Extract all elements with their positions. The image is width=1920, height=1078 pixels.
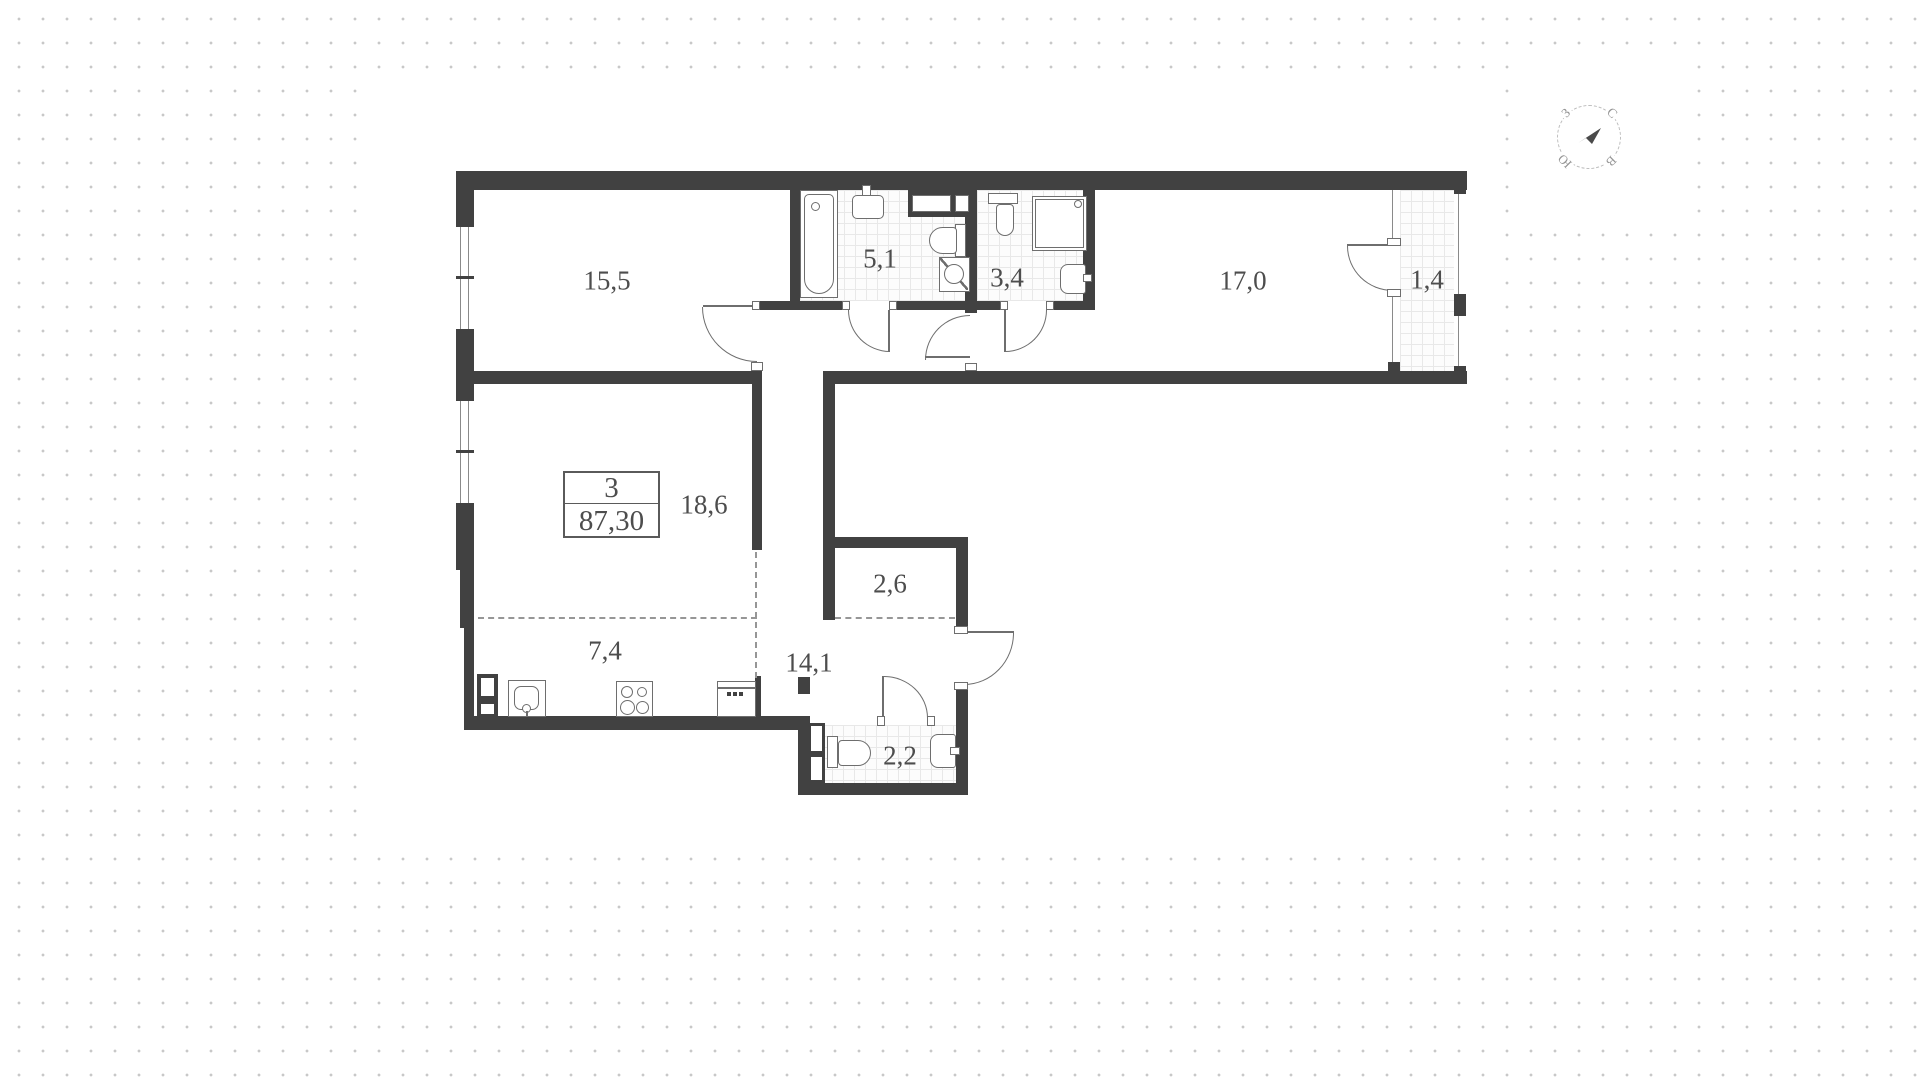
vent-shaft-opening [912,195,951,212]
shower-drain [1074,200,1082,208]
room-area-label: 1,4 [1410,265,1444,296]
toilet-bowl [838,740,871,766]
vent-shaft-opening [955,195,969,212]
door-arc [848,310,890,352]
wall-column [798,677,810,694]
balcony-window [1388,190,1400,244]
glazing-mullion [1454,190,1466,194]
room-area-label: 2,2 [883,741,917,772]
floor-plan-canvas: 15,5 5,1 3,4 17,0 1,4 18,6 2,6 7,4 14,1 … [0,0,1920,1078]
door-jamb [954,626,968,634]
wall-segment [823,371,1467,384]
glazing-mullion [1454,294,1466,316]
zone-boundary-dashed [835,617,955,619]
toilet-tank [988,193,1018,204]
window-sill [456,224,474,227]
wall-segment [757,301,848,310]
window-sill [456,329,474,332]
door-arc [884,676,928,718]
toilet-bowl [929,227,957,254]
toilet-tank [827,736,838,768]
door-leaf [703,305,757,307]
door-leaf [925,356,970,358]
wall-segment [460,570,474,628]
window-sill [456,450,474,453]
apartment-number: 3 [565,473,658,504]
appliance-dot [739,692,743,696]
door-leaf [888,310,890,352]
door-leaf [1004,310,1006,352]
window-sill [456,398,474,401]
door-arc [702,307,757,362]
floor-plan: 15,5 5,1 3,4 17,0 1,4 18,6 2,6 7,4 14,1 … [0,0,1920,1078]
vent-duct [808,723,825,754]
door-jamb [954,682,968,690]
faucet [862,185,871,196]
stove-burner [620,700,635,715]
room-area-label: 2,6 [873,569,907,600]
door-jamb [1046,301,1054,310]
room-area-label: 15,5 [583,266,630,297]
wall-segment [464,716,810,730]
vent-duct [808,754,825,783]
door-jamb [927,716,935,726]
washing-machine [939,257,970,292]
apartment-info-box: 3 87,30 [563,471,660,538]
wall-segment [956,689,968,795]
window-sill [456,276,474,279]
door-jamb [752,301,760,310]
bathtub-drain [811,202,820,211]
kitchen-faucet-stem [526,711,528,717]
door-jamb [889,301,897,310]
sink [852,195,884,219]
stove-burner [636,701,649,714]
room-area-label: 5,1 [863,244,897,275]
compass-arrow-icon [1578,127,1602,147]
wall-segment [456,506,474,570]
door-leaf [882,676,884,718]
wall-segment [835,537,956,548]
toilet-bowl [996,204,1014,236]
appliance-dot [727,692,731,696]
balcony-glazing [1454,190,1466,371]
glazing-mullion [1454,366,1466,371]
door-jamb [842,301,850,310]
door-jamb [1387,238,1401,246]
wall-segment [456,171,474,224]
wall-segment [956,537,968,629]
room-area-label: 3,4 [990,263,1024,294]
wall-segment [823,384,835,620]
apartment-total-area: 87,30 [565,504,658,537]
washing-machine-drum [944,264,964,284]
kitchen-appliance-line [718,687,755,689]
wall-segment [798,783,968,795]
wall-segment [752,371,762,550]
balcony-window [1388,297,1400,362]
room-area-label: 17,0 [1219,266,1266,297]
entrance-door-arc [964,633,1014,685]
wall-segment [456,332,474,398]
wall-segment [464,628,474,728]
door-jamb [877,716,885,726]
door-leaf [964,631,1014,633]
wall-segment [790,190,800,310]
vent-duct [477,674,498,700]
window-sill [456,503,474,506]
door-jamb [965,363,977,371]
stove-burner [621,686,633,698]
wall-segment [1388,362,1400,373]
door-arc [925,315,970,360]
zone-boundary-dashed [755,552,757,678]
zone-boundary-dashed [478,617,757,619]
faucet [1083,274,1092,282]
door-jamb [1000,301,1008,310]
balcony-door-arc [1347,246,1393,291]
vent-duct [477,700,498,718]
wall-segment [462,371,757,384]
room-area-label: 14,1 [785,648,832,679]
door-jamb [1387,289,1401,297]
stove-burner [637,687,647,697]
door-jamb [751,362,763,371]
faucet [950,747,960,755]
room-area-label: 7,4 [588,636,622,667]
door-arc [1005,310,1047,352]
room-area-label: 18,6 [680,490,727,521]
appliance-dot [733,692,737,696]
